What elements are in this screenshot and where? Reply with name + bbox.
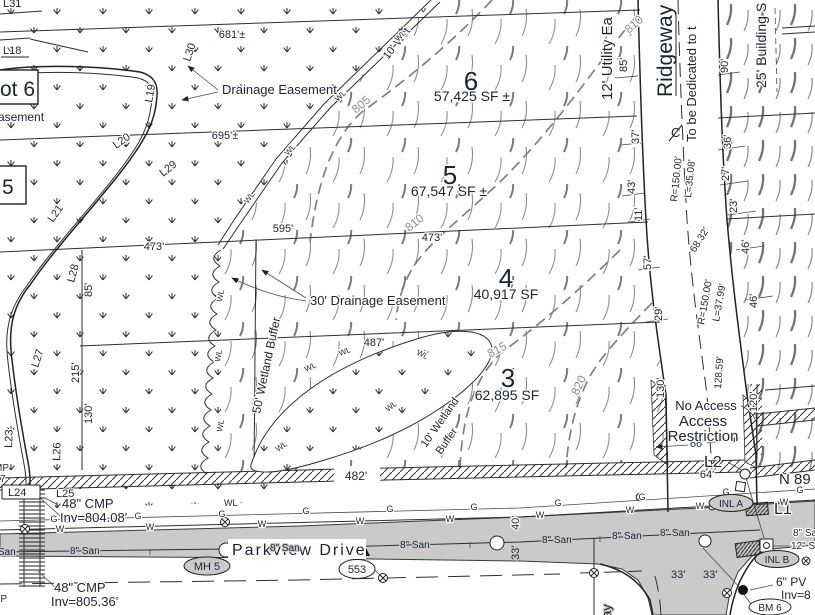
- dim-23: 23': [728, 199, 740, 213]
- valve-icon: [379, 574, 388, 583]
- dim-473-west: 473': [144, 241, 164, 253]
- dim-681: 681'±: [219, 29, 246, 41]
- san-label: 8" San: [542, 535, 572, 546]
- dim-36: 36': [722, 135, 734, 149]
- marker-square-icon: [735, 481, 745, 491]
- svg-text:BM 6: BM 6: [758, 603, 782, 614]
- monument-icon: [738, 585, 748, 595]
- lot3-area: 62,895 SF: [475, 387, 540, 403]
- tag-l23: L23: [3, 429, 16, 448]
- corner-monument-icon: [740, 469, 750, 479]
- bearing-n89: N 89: [779, 471, 811, 488]
- svg-text:553: 553: [348, 564, 366, 576]
- wetland-line-tag: WL: [224, 498, 238, 508]
- manhole-icon: [699, 535, 711, 547]
- partial-label-mp2: MP: [0, 594, 7, 605]
- san-label: 8" San: [70, 546, 100, 557]
- drainage-easement-label: Drainage Easement: [222, 82, 337, 97]
- dim-46-north: 46': [740, 240, 752, 254]
- partial-label-mp: MP: [0, 463, 9, 474]
- inl-a-tag: INL A: [709, 495, 753, 512]
- ridgeway-name: Ridgeway: [654, 4, 677, 97]
- svg-text:INL A: INL A: [719, 499, 743, 510]
- dim-85-road: 85': [618, 58, 630, 72]
- bm6-tag: BM 6: [749, 599, 791, 615]
- dim-6832: 68.32': [688, 226, 712, 255]
- storm-12-label: 12" Sto: [791, 541, 815, 552]
- water-letter: W: [258, 519, 267, 529]
- access-restriction-note-2: Restriction: [668, 428, 739, 445]
- cmp-culvert: [19, 487, 45, 587]
- dim-90: 90': [719, 59, 731, 73]
- water-valve-icon: [21, 525, 30, 534]
- lot4-area: 40,917 SF: [474, 286, 539, 302]
- water-letter: W: [446, 514, 455, 524]
- cmp-lower-invert: Inv=805.36': [51, 594, 118, 609]
- plat-map-svg: 6 57,425 SF ± 5 67,547 SF ± 4 40,917 SF …: [0, 0, 815, 615]
- dim-43: 43': [626, 180, 638, 194]
- gas-letter: G: [134, 511, 141, 521]
- water-letter: W: [780, 497, 789, 507]
- water-letter: W: [696, 501, 705, 511]
- lot5-area: 67,547 SF ±: [411, 183, 487, 199]
- partial-label-7: 7: [0, 474, 6, 485]
- tag-l24: L24: [8, 487, 26, 499]
- curve2-length: L=37.99': [711, 283, 729, 323]
- manhole-icon: [490, 536, 504, 550]
- gas-letter: G: [302, 506, 309, 516]
- cmp-upper-invert: Inv=804.08': [60, 510, 127, 525]
- gas-letter: G: [470, 502, 477, 512]
- valve-icon: [590, 569, 599, 578]
- san-label: 8" San: [400, 540, 430, 551]
- catch-basin-icon: [760, 539, 773, 552]
- dim-85-west: 85': [83, 283, 95, 297]
- gas-letter: G: [638, 492, 645, 502]
- san-label: 8" San: [0, 547, 16, 558]
- pvc-6-label: 6" PV: [776, 575, 806, 589]
- dim-695: 695'±: [212, 130, 239, 142]
- dim-33-b: 33': [703, 569, 717, 581]
- tag-l18: L18: [3, 45, 21, 57]
- dim-215: 215': [70, 363, 82, 383]
- lot6-area: 57,425 SF ±: [434, 88, 510, 104]
- tag-l2: L2: [704, 454, 722, 471]
- water-letter: W: [56, 524, 65, 534]
- san-label: 8" San: [660, 528, 690, 539]
- dim-595: 595': [273, 223, 293, 235]
- adjacent-lot6-label: ot 6: [0, 78, 35, 101]
- gas-letter: G: [50, 514, 57, 524]
- gas-letter: G: [554, 498, 561, 508]
- building-setback-label: 25' Building S: [753, 3, 769, 88]
- utility-easement-label: 12' Utility Ea: [599, 16, 616, 100]
- dim-33-a: 33': [671, 569, 685, 581]
- svg-text:MH 5: MH 5: [194, 561, 220, 573]
- san-label: 8" San: [612, 531, 642, 542]
- gas-letter: G: [218, 509, 225, 519]
- invert-partial-label: Inv=8: [781, 588, 811, 602]
- ridgeway-name-group: Ridgeway: [654, 4, 677, 97]
- dim-11: 11': [633, 207, 645, 221]
- dim-33-c: 33': [510, 546, 522, 560]
- dim-130-road: 130': [655, 378, 667, 398]
- dim-37: 37': [630, 130, 642, 144]
- dim-40: 40': [510, 516, 522, 530]
- san-east-partial: 8" San: [793, 528, 815, 539]
- cmp-upper-label: 48" CMP: [62, 496, 114, 511]
- svg-text:INL B: INL B: [765, 555, 790, 566]
- adjacent-lot5-label: 5: [2, 176, 14, 199]
- dim-473-east: 473': [422, 232, 442, 244]
- cmp-lower-label: 48" CMP: [54, 580, 106, 595]
- dim-12859: 128.59': [713, 356, 726, 389]
- water-letter: W: [356, 516, 365, 526]
- gas-letter: G: [796, 485, 803, 495]
- dim-487: 487': [364, 337, 384, 349]
- curve1-length: L=35.08': [683, 159, 698, 198]
- mh5-tag: MH 5: [184, 557, 230, 575]
- dim-120: 120': [748, 392, 760, 412]
- drainage-easement-30-label: 30' Drainage Easement: [310, 293, 446, 308]
- dim-57: 57': [642, 256, 654, 270]
- 553-tag: 553: [339, 560, 375, 579]
- ridgeway-south-name: ay: [599, 604, 614, 615]
- water-letter: W: [536, 510, 545, 520]
- valve-icon: [802, 557, 810, 565]
- water-letter: W: [146, 522, 155, 532]
- valve-icon: [723, 589, 732, 598]
- dedication-label: To be Dedicated to t: [684, 26, 699, 142]
- tag-l26: L26: [51, 442, 64, 461]
- dim-46-south: 46': [748, 294, 760, 308]
- inl-b-tag: INL B: [755, 551, 799, 568]
- san-label: 8" San: [270, 543, 300, 554]
- tag-l31: L31: [3, 0, 21, 10]
- gas-letter: G: [386, 504, 393, 514]
- dim-130-west: 130': [83, 404, 95, 424]
- dim-29: 29': [653, 307, 665, 321]
- water-letter: W: [626, 505, 635, 515]
- dim-482: 482': [345, 469, 367, 483]
- dim-27: 27': [720, 167, 732, 181]
- no-access-note: No Access: [675, 398, 737, 413]
- easement-partial-label: asement: [0, 110, 45, 124]
